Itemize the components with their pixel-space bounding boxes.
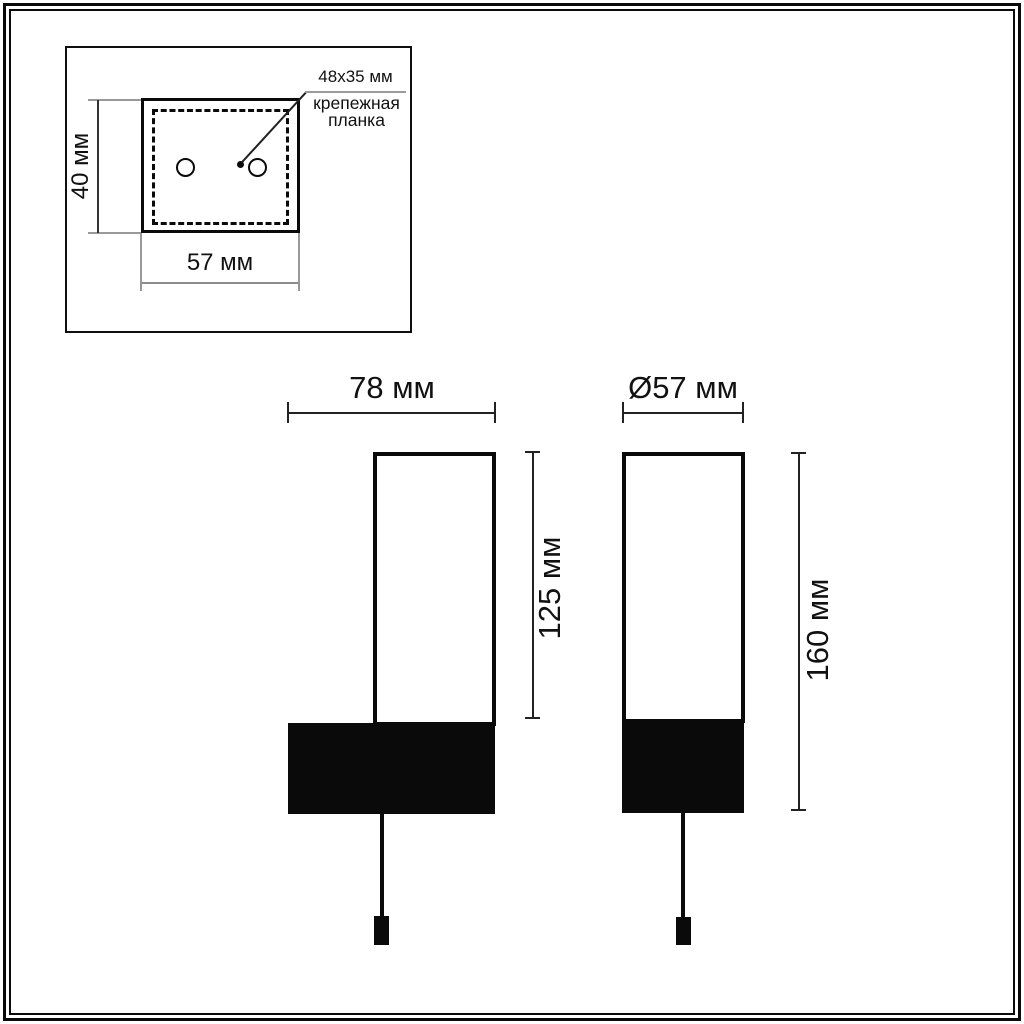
side-view-pull-knob [676,917,691,945]
side-height-dimension-label: 160 мм [802,570,834,690]
lamp-dimension-drawing: 48x35 мм крепежная планка 40 мм 57 мм 78… [0,0,1024,1024]
inset-height-extension-top [88,99,141,101]
screw-hole-right [248,158,267,177]
front-height-tick-bottom [525,717,540,719]
front-view-pull-knob [374,916,389,945]
annotation-leader-dot [237,161,244,168]
side-view-pull-cord [681,813,685,917]
side-diameter-tick-left [622,402,624,423]
plate-size-label: 48x35 мм [295,67,416,87]
plate-name-label: крепежная планка [296,95,417,129]
side-diameter-tick-right [742,402,744,423]
side-diameter-dimension-line [623,412,743,414]
side-height-tick-top [791,452,806,454]
front-view-glass-shade [373,452,496,726]
inset-height-dimension-line [97,100,99,233]
inset-width-dimension-line [141,282,299,284]
side-view-glass-shade [622,452,745,723]
front-width-tick-left [287,402,289,423]
front-height-dimension-label: 125 мм [534,528,566,648]
front-width-dimension-line [288,412,495,414]
plate-name-line2: планка [296,112,417,129]
mounting-plate-dashed-outline [152,109,289,225]
front-width-dimension-label: 78 мм [312,371,472,405]
front-view-pull-cord [380,814,384,917]
side-view-base [622,723,744,813]
screw-hole-left [176,158,195,177]
front-height-tick-top [525,451,540,453]
side-height-tick-bottom [791,809,806,811]
inset-width-dimension-label: 57 мм [160,250,280,276]
side-diameter-dimension-label: Ø57 мм [603,371,763,405]
inset-height-dimension-label: 40 мм [69,131,93,201]
front-view-base [288,723,495,814]
front-width-tick-right [494,402,496,423]
inset-height-extension-bottom [88,232,141,234]
